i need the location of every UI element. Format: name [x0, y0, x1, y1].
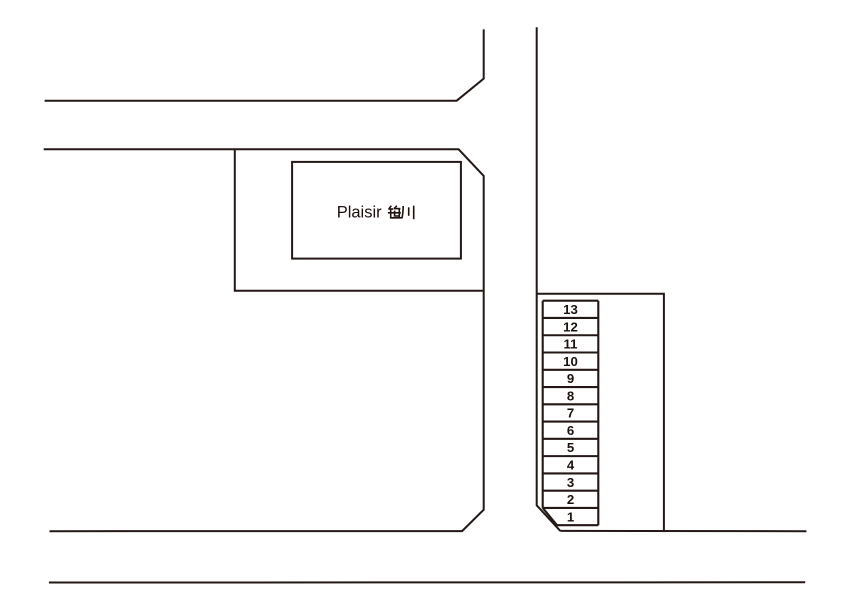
- svg-text:2: 2: [567, 492, 574, 507]
- svg-text:11: 11: [564, 337, 578, 352]
- svg-text:12: 12: [563, 319, 578, 334]
- svg-text:8: 8: [567, 388, 574, 403]
- svg-text:7: 7: [567, 406, 574, 421]
- svg-text:3: 3: [567, 475, 574, 490]
- svg-text:9: 9: [567, 371, 574, 386]
- svg-text:Plaisir: Plaisir: [337, 204, 382, 222]
- svg-text:4: 4: [567, 458, 575, 473]
- svg-text:6: 6: [567, 423, 574, 438]
- svg-text:13: 13: [563, 302, 578, 317]
- svg-text:10: 10: [563, 354, 578, 369]
- svg-text:1: 1: [567, 509, 574, 524]
- svg-text:5: 5: [567, 440, 574, 455]
